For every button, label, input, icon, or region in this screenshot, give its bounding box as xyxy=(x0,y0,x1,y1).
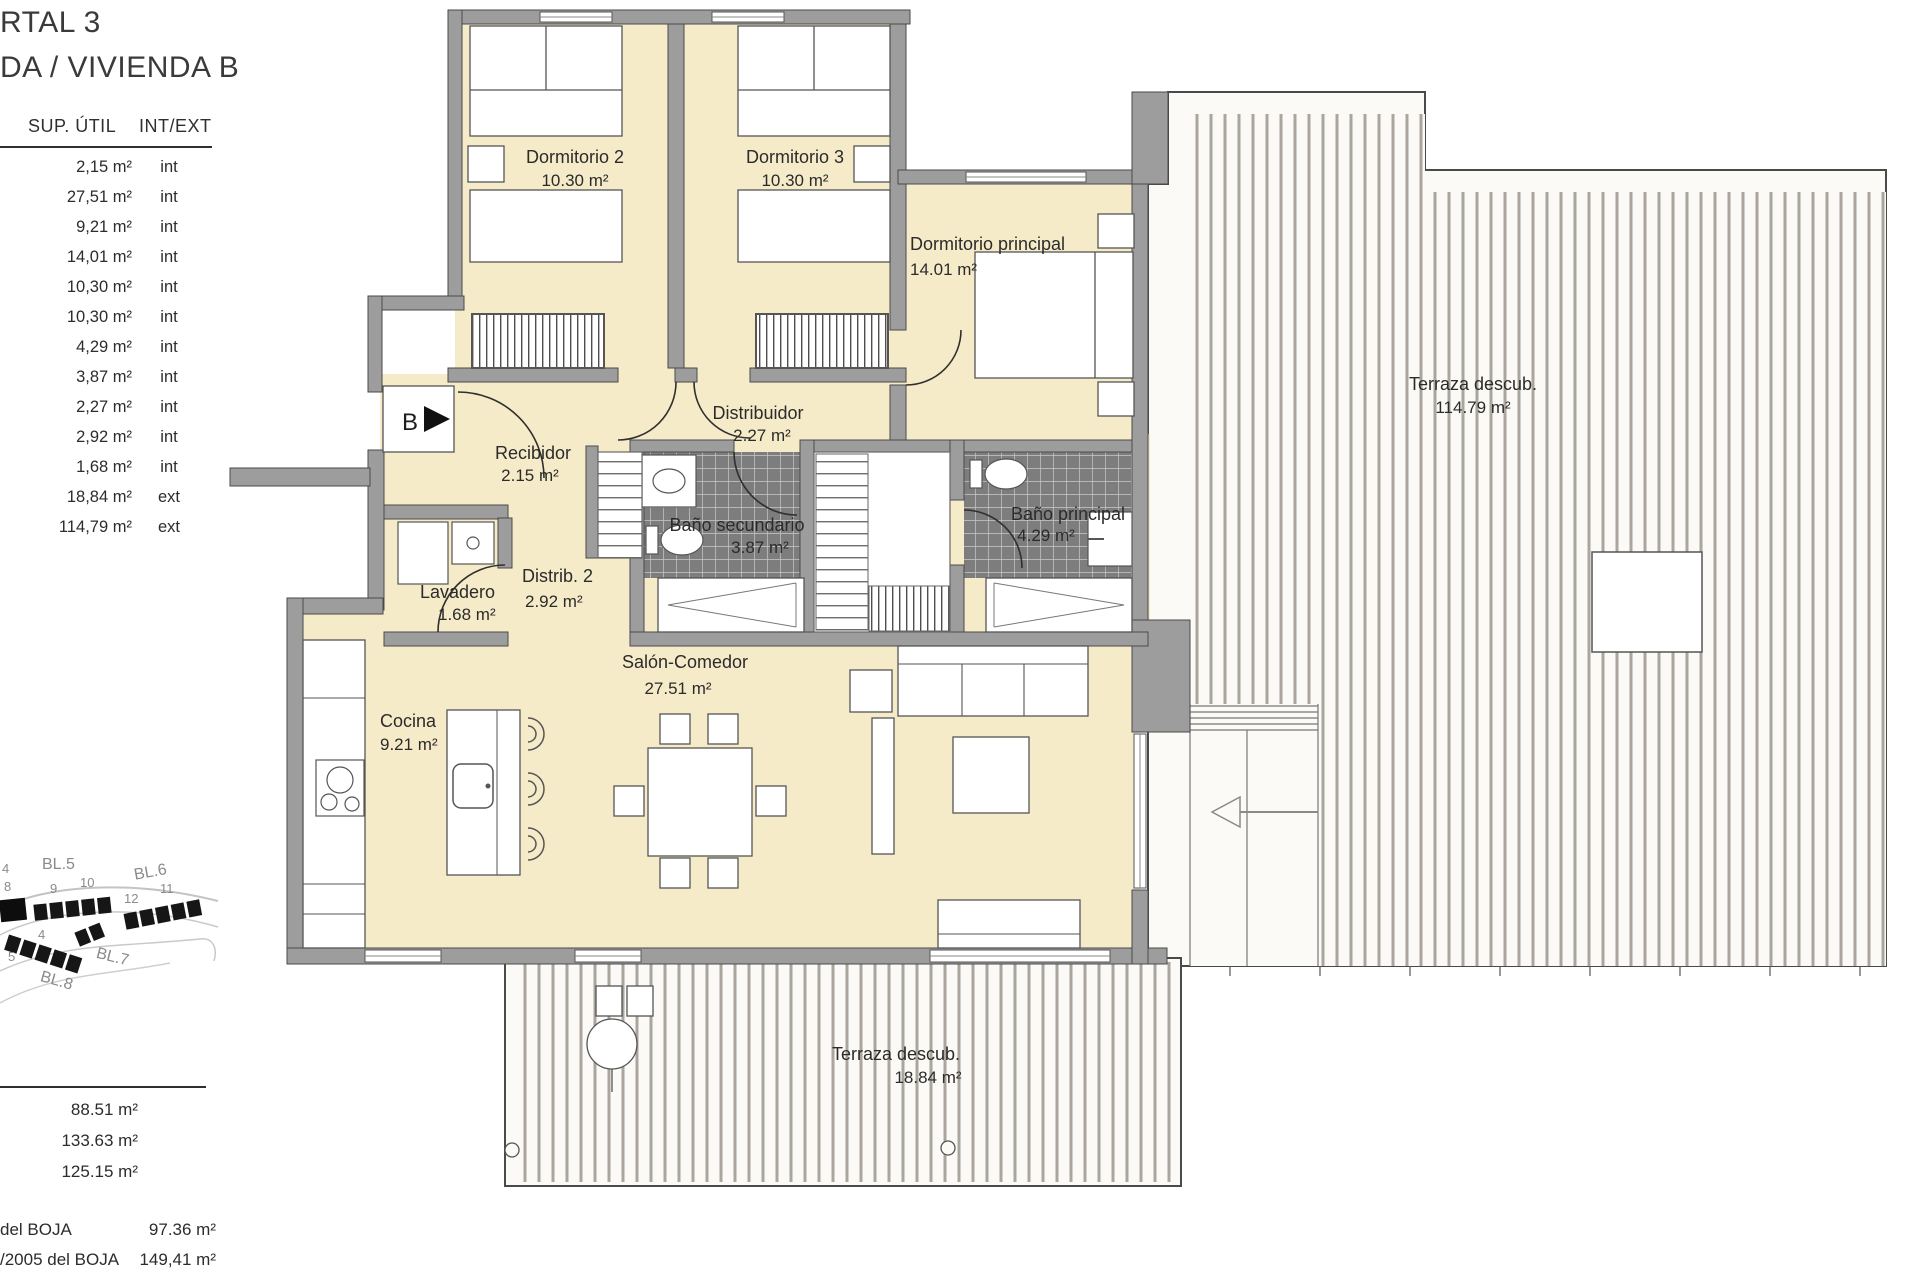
bathtub xyxy=(986,578,1132,632)
sofa xyxy=(898,646,1088,716)
wall xyxy=(950,440,964,500)
loveseat xyxy=(938,900,1080,948)
bed xyxy=(975,252,1133,378)
nightstand xyxy=(468,146,504,182)
hall-closets xyxy=(814,452,950,632)
label-dormitorio3: Dormitorio 3 xyxy=(746,147,844,167)
chair xyxy=(660,714,690,744)
label-cocina: Cocina xyxy=(380,711,437,731)
stair-area xyxy=(1190,704,1318,966)
nightstand xyxy=(1098,382,1134,416)
wall xyxy=(630,440,734,452)
wall xyxy=(668,24,684,368)
nightstand xyxy=(1098,214,1134,248)
label-dormitorio2: Dormitorio 2 xyxy=(526,147,624,167)
terrace-skylight xyxy=(1592,552,1702,652)
side-table xyxy=(850,670,892,712)
toilet-tank xyxy=(970,460,982,488)
wall xyxy=(630,632,1148,646)
dining-table xyxy=(648,748,752,856)
wall xyxy=(586,446,598,558)
terrace-lower xyxy=(505,958,1181,1186)
drain-marker xyxy=(505,1143,519,1157)
closet-shelves xyxy=(816,454,868,630)
bed-foot xyxy=(738,190,890,262)
label-salon-comedor: Salón-Comedor xyxy=(622,652,748,672)
dormitorio2-furniture xyxy=(468,26,622,368)
area-terraza-2: 18.84 m² xyxy=(894,1068,961,1087)
area-distrib2: 2.92 m² xyxy=(525,592,583,611)
wall xyxy=(1132,92,1168,184)
label-distrib2: Distrib. 2 xyxy=(522,566,593,586)
tv-unit xyxy=(872,718,894,854)
area-terraza: 114.79 m² xyxy=(1435,398,1511,417)
area-dormitorio3: 10.30 m² xyxy=(761,171,828,190)
terrace-main xyxy=(1148,92,1886,976)
wall xyxy=(384,505,508,519)
area-dormitorio-principal: 14.01 m² xyxy=(910,260,977,279)
terrace-chair xyxy=(596,986,622,1016)
floor-plan: B Dormitorio 2 10.30 m² Dormitorio 3 10.… xyxy=(0,0,1920,1280)
wall xyxy=(230,468,370,486)
toilet-icon xyxy=(985,459,1027,489)
chair xyxy=(756,786,786,816)
coffee-table xyxy=(953,737,1029,813)
wall xyxy=(814,440,950,452)
label-bano-principal: Baño principal xyxy=(1011,504,1125,524)
nightstand xyxy=(854,146,890,182)
chair xyxy=(660,858,690,888)
washing-machine xyxy=(452,522,494,564)
sink-tap xyxy=(486,784,491,789)
label-terraza-2: Terraza descub. xyxy=(832,1044,960,1064)
label-recibidor: Recibidor xyxy=(495,443,571,463)
shower-tray xyxy=(658,578,804,632)
wall xyxy=(675,368,697,382)
area-bano-secundario: 3.87 m² xyxy=(731,538,789,557)
wall xyxy=(384,632,508,646)
wall xyxy=(1132,890,1148,964)
wall xyxy=(448,368,618,382)
area-lavadero: 1.68 m² xyxy=(438,605,496,624)
floorplan-sheet: RTAL 3 DA / VIVIENDA B SUP. ÚTIL INT/EXT… xyxy=(0,0,1920,1280)
bed-foot xyxy=(470,190,622,262)
area-distribuidor: 2.27 m² xyxy=(733,426,791,445)
area-dormitorio2: 10.30 m² xyxy=(541,171,608,190)
laundry-counter xyxy=(398,522,448,584)
label-lavadero: Lavadero xyxy=(420,582,495,602)
chair xyxy=(614,786,644,816)
wall xyxy=(448,10,462,310)
drain-marker xyxy=(941,1141,955,1155)
wall xyxy=(498,518,512,568)
area-recibidor: 2.15 m² xyxy=(501,466,559,485)
label-dormitorio-principal: Dormitorio principal xyxy=(910,234,1065,254)
terrace-table xyxy=(587,1019,637,1069)
closet-hangers xyxy=(869,586,949,631)
entrance-letter: B xyxy=(402,409,418,436)
area-salon-comedor: 27.51 m² xyxy=(644,679,711,698)
wall xyxy=(964,440,1132,452)
dormitorio3-furniture xyxy=(738,26,890,368)
area-bano-principal: 4.29 m² xyxy=(1017,526,1075,545)
wardrobe xyxy=(756,314,888,368)
terrace-chair xyxy=(627,986,653,1016)
wardrobe xyxy=(472,314,604,368)
terrace-edge-ticks xyxy=(1230,966,1860,976)
label-bano-secundario: Baño secundario xyxy=(669,515,804,535)
wall xyxy=(287,598,303,964)
wall xyxy=(448,10,910,24)
label-terraza: Terraza descub. xyxy=(1409,374,1537,394)
wall xyxy=(368,296,382,392)
area-cocina: 9.21 m² xyxy=(380,735,438,754)
washbasin-bowl xyxy=(653,469,685,493)
toilet-tank xyxy=(646,526,658,554)
wall xyxy=(750,368,906,382)
label-distribuidor: Distribuidor xyxy=(712,403,803,423)
chair xyxy=(708,714,738,744)
terrace-stair xyxy=(1190,704,1318,966)
chair xyxy=(708,858,738,888)
recibidor-closet xyxy=(598,452,642,558)
